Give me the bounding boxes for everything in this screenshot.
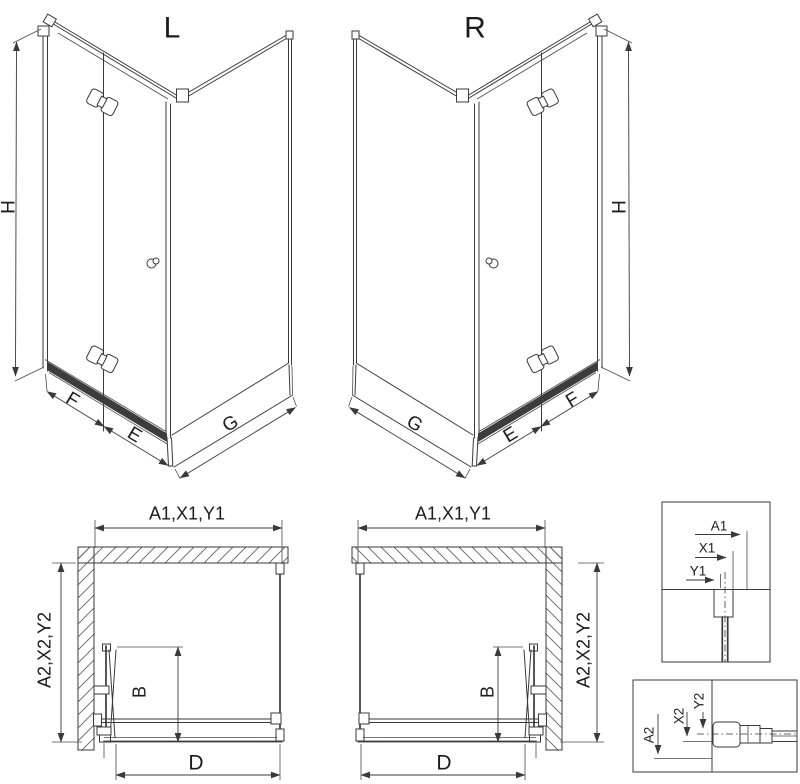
dim-label-front-door-left: E [124, 423, 146, 448]
plan-right-door-depth-label: B [477, 686, 497, 698]
plan-left-width-label: D [188, 751, 203, 774]
plan-view-left: A1,X1,Y1 A2,X2,Y2 B D [34, 503, 288, 780]
plan-left-door-depth-label: B [129, 686, 149, 698]
detail-bottom-y2-label: Y2 [692, 693, 707, 710]
plan-right-width-label: D [436, 751, 451, 774]
drawing-canvas: L H F E G R H F E G A1,X1,Y1 A2,X2,Y2 [0, 0, 800, 784]
plan-left-side-dim-label: A2,X2,Y2 [34, 612, 54, 688]
detail-box-bottom: A2 X2 Y2 [633, 680, 797, 772]
iso-view-right: R H F E G [349, 12, 633, 479]
detail-bottom-a2-label: A2 [642, 727, 657, 744]
plan-right-side-dim-label: A2,X2,Y2 [573, 612, 593, 688]
dim-label-height-left: H [0, 200, 20, 214]
iso-view-left: L H F E G [0, 12, 297, 479]
plan-left-top-dim-label: A1,X1,Y1 [149, 503, 225, 523]
dim-label-front-panel-right: F [562, 388, 583, 412]
technical-drawing: L H F E G R H F E G A1,X1,Y1 A2,X2,Y2 [0, 0, 800, 784]
dim-label-height-right: H [610, 200, 631, 214]
plan-view-right: A1,X1,Y1 A2,X2,Y2 B D [352, 503, 604, 780]
dim-label-side-panel-right: G [403, 411, 426, 437]
detail-top-a1-label: A1 [711, 519, 728, 534]
dim-label-front-panel-left: F [62, 388, 83, 412]
detail-top-y1-label: Y1 [690, 564, 707, 579]
plan-right-top-dim-label: A1,X1,Y1 [415, 503, 491, 523]
detail-bottom-x2-label: X2 [672, 708, 687, 725]
detail-top-x1-label: X1 [699, 541, 716, 556]
left-view-title: L [164, 12, 181, 45]
dim-label-side-panel-left: G [219, 411, 242, 437]
right-view-title: R [464, 12, 486, 45]
dim-label-front-door-right: E [500, 423, 522, 448]
detail-box-top: A1 X1 Y1 [662, 502, 770, 662]
